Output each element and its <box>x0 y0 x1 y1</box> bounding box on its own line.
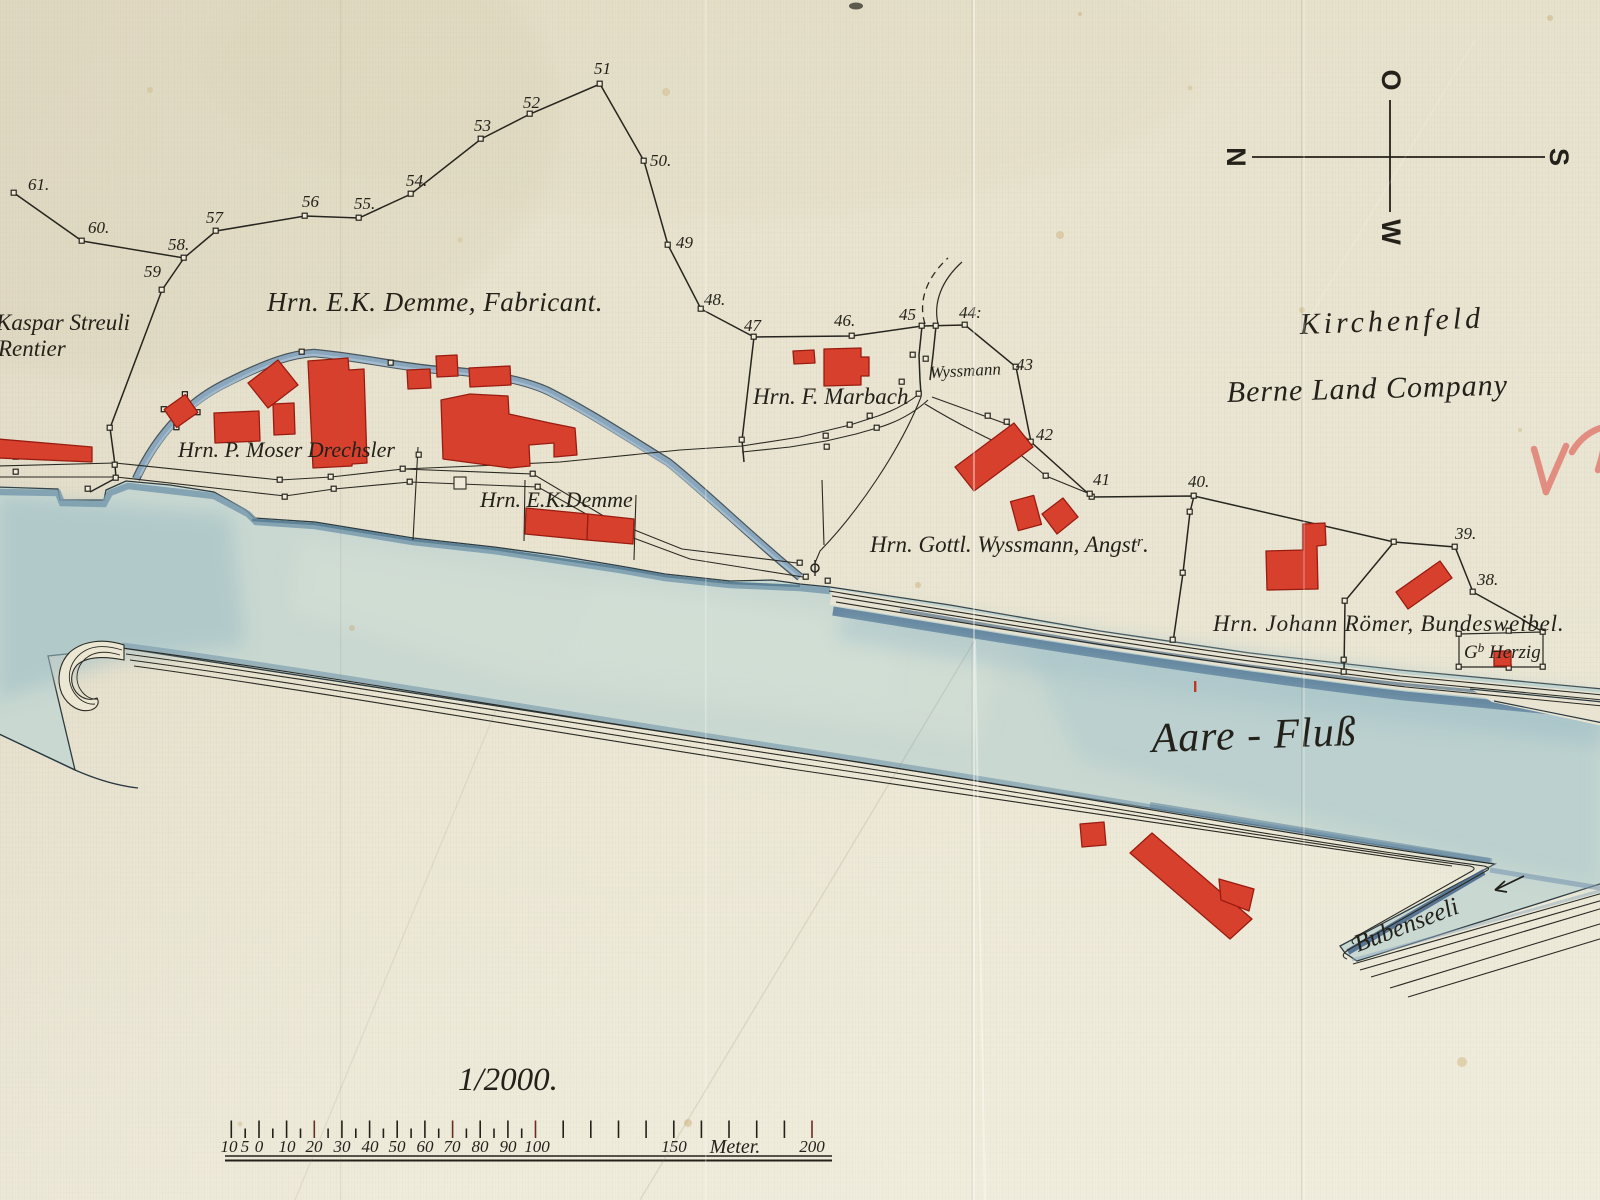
svg-text:52: 52 <box>523 93 541 112</box>
svg-text:Aare - Fluß: Aare - Fluß <box>1148 709 1358 762</box>
svg-text:0: 0 <box>255 1137 264 1156</box>
svg-text:55.: 55. <box>354 194 375 213</box>
svg-text:Gb Herzig: Gb Herzig <box>1464 640 1541 663</box>
svg-text:Hrn. F. Marbach: Hrn. F. Marbach <box>752 384 908 409</box>
svg-text:42: 42 <box>1036 425 1054 444</box>
svg-text:Rentier: Rentier <box>0 336 67 361</box>
svg-text:51: 51 <box>594 59 611 78</box>
svg-text:Hrn. E.K. Demme, Fabricant.: Hrn. E.K. Demme, Fabricant. <box>266 287 603 317</box>
svg-text:56: 56 <box>302 192 320 211</box>
svg-text:60: 60 <box>417 1137 435 1156</box>
svg-text:50.: 50. <box>650 151 671 170</box>
svg-text:Kirchenfeld: Kirchenfeld <box>1298 302 1485 341</box>
svg-text:57: 57 <box>206 208 225 227</box>
svg-text:Hrn. Gottl. Wyssmann, Angstr.: Hrn. Gottl. Wyssmann, Angstr. <box>869 532 1149 557</box>
svg-text:Hrn. Johann Römer, Bundesweibe: Hrn. Johann Römer, Bundesweibel. <box>1212 611 1564 636</box>
svg-text:44:: 44: <box>959 303 982 322</box>
svg-text:53: 53 <box>474 116 491 135</box>
svg-text:80: 80 <box>472 1137 490 1156</box>
svg-text:30: 30 <box>333 1137 352 1156</box>
svg-text:48.: 48. <box>704 290 725 309</box>
svg-text:Wyssmann: Wyssmann <box>929 359 1001 382</box>
svg-text:90: 90 <box>500 1137 518 1156</box>
svg-text:46.: 46. <box>834 311 855 330</box>
svg-text:S: S <box>1544 148 1574 166</box>
svg-text:38.: 38. <box>1476 570 1498 589</box>
svg-text:61.: 61. <box>28 175 49 194</box>
svg-text:41: 41 <box>1093 470 1110 489</box>
svg-text:Kaspar Streuli: Kaspar Streuli <box>0 310 130 335</box>
svg-text:49: 49 <box>676 233 694 252</box>
svg-text:40: 40 <box>362 1137 380 1156</box>
svg-text:200: 200 <box>799 1137 825 1156</box>
svg-text:47: 47 <box>744 316 763 335</box>
svg-text:58.: 58. <box>168 235 189 254</box>
svg-text:150: 150 <box>661 1137 687 1156</box>
svg-text:54.: 54. <box>406 171 427 190</box>
svg-text:45: 45 <box>899 305 916 324</box>
svg-text:O: O <box>1376 69 1406 90</box>
svg-text:100: 100 <box>524 1137 550 1156</box>
svg-text:43: 43 <box>1016 355 1033 374</box>
svg-text:10: 10 <box>279 1137 297 1156</box>
svg-text:5: 5 <box>241 1137 250 1156</box>
svg-text:1/2000.: 1/2000. <box>458 1062 558 1098</box>
svg-text:59: 59 <box>144 262 162 281</box>
svg-text:Meter.: Meter. <box>709 1136 761 1158</box>
svg-text:70: 70 <box>444 1137 462 1156</box>
svg-text:60.: 60. <box>88 218 109 237</box>
svg-text:W: W <box>1376 219 1406 245</box>
svg-text:Hrn. P. Moser Drechsler: Hrn. P. Moser Drechsler <box>177 437 395 462</box>
svg-text:N: N <box>1221 147 1251 167</box>
svg-text:Hrn. E.K.Demme: Hrn. E.K.Demme <box>479 487 633 512</box>
svg-text:39.: 39. <box>1454 524 1476 543</box>
svg-text:50: 50 <box>389 1137 407 1156</box>
svg-text:10: 10 <box>221 1137 239 1156</box>
svg-text:40.: 40. <box>1188 472 1209 491</box>
